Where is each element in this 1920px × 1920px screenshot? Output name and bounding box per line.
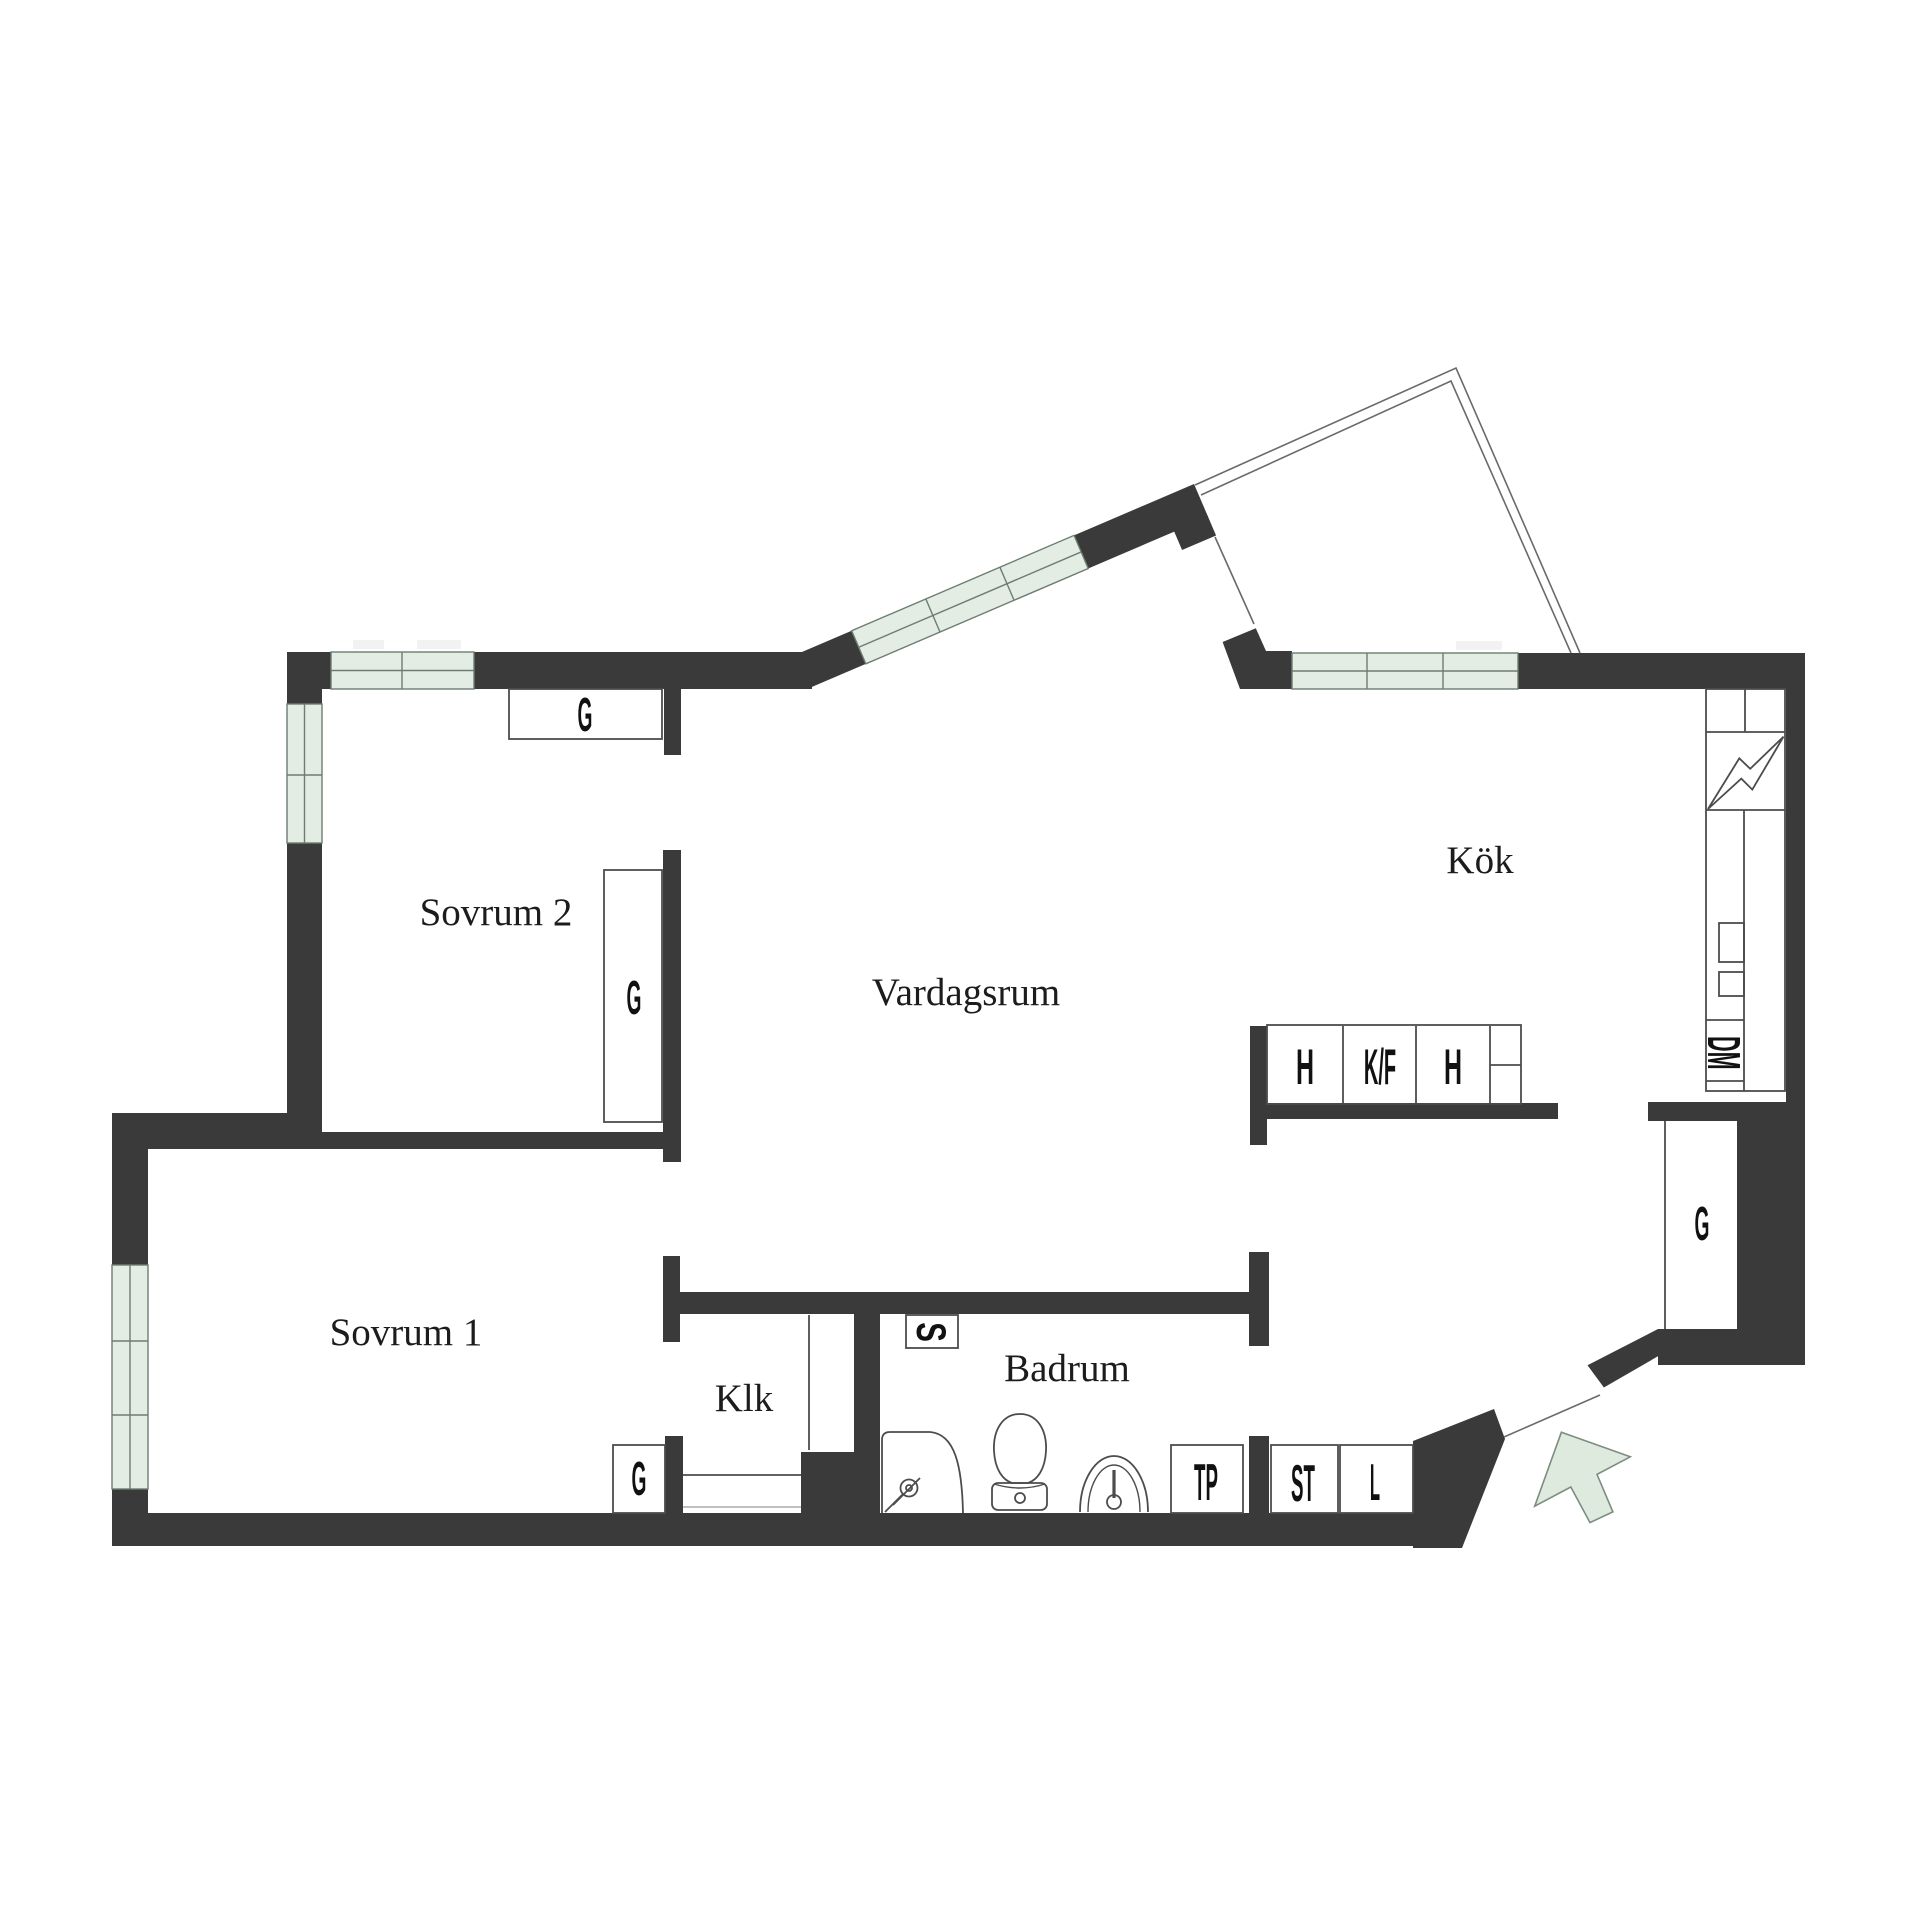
svg-text:Vardagsrum: Vardagsrum	[872, 971, 1060, 1014]
svg-text:Sovrum 2: Sovrum 2	[420, 891, 573, 934]
svg-text:G: G	[627, 971, 642, 1025]
svg-text:S: S	[908, 1322, 956, 1342]
svg-text:Sovrum 1: Sovrum 1	[330, 1311, 483, 1354]
svg-text:G: G	[632, 1452, 647, 1506]
svg-text:G: G	[1695, 1197, 1710, 1251]
svg-text:TP: TP	[1194, 1455, 1218, 1512]
svg-text:H: H	[1296, 1040, 1314, 1096]
svg-text:DM: DM	[1698, 1036, 1750, 1070]
svg-text:H: H	[1444, 1040, 1462, 1096]
svg-text:Kök: Kök	[1446, 839, 1514, 882]
svg-text:Badrum: Badrum	[1004, 1347, 1130, 1390]
svg-text:ST: ST	[1291, 1456, 1315, 1513]
svg-text:L: L	[1370, 1454, 1380, 1512]
svg-text:K/F: K/F	[1364, 1041, 1396, 1096]
svg-text:G: G	[578, 688, 593, 742]
svg-text:Klk: Klk	[715, 1377, 774, 1420]
